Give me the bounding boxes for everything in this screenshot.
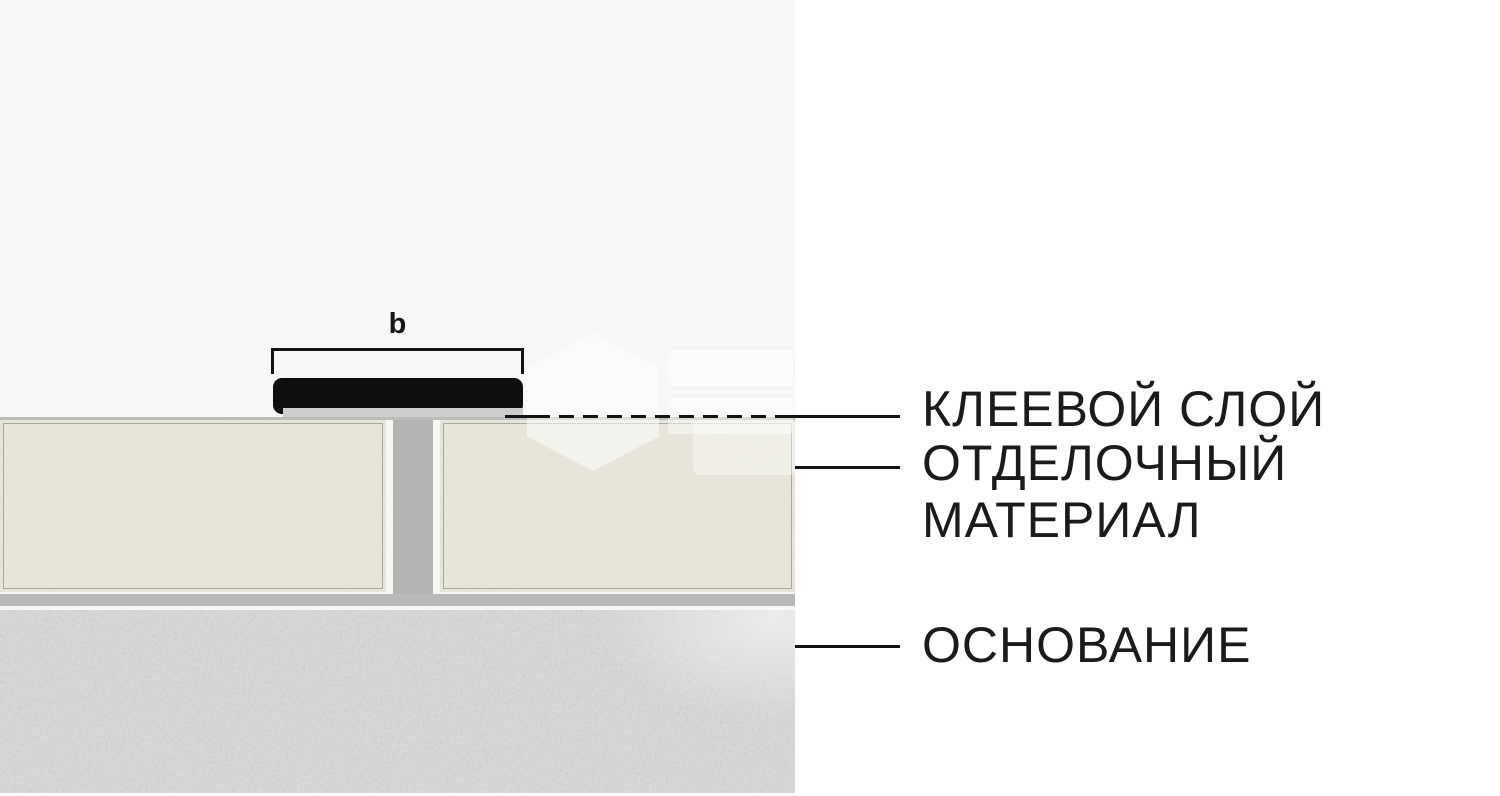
dimension-label: b [273, 308, 523, 341]
dimension-bracket-tick-right [521, 348, 524, 374]
dimension-bracket-line [271, 348, 524, 351]
callout-finishing-material-line2: МАТЕРИАЛ [922, 495, 1202, 545]
dimension-bracket-tick-left [271, 348, 274, 374]
leader-line-substrate [795, 645, 900, 648]
leader-line-adhesive [505, 415, 535, 418]
leader-line-adhesive [788, 415, 900, 418]
diagram-stage: b [0, 0, 1500, 796]
watermark-fragment [693, 420, 795, 475]
leader-line-finishing [795, 466, 900, 469]
finishing-panel-left [0, 420, 386, 592]
adhesive-bed-strip [0, 594, 795, 606]
callout-substrate: ОСНОВАНИЕ [922, 620, 1251, 670]
callout-finishing-material-line1: ОТДЕЛОЧНЫЙ [922, 438, 1287, 488]
stucco-texture [0, 420, 386, 592]
panel-joint-filler [393, 420, 433, 594]
leader-line-adhesive-dashed [535, 415, 788, 418]
substrate-highlight [600, 610, 795, 720]
callout-adhesive-layer: КЛЕЕВОЙ СЛОЙ [922, 384, 1325, 434]
watermark-fragment [668, 350, 793, 386]
